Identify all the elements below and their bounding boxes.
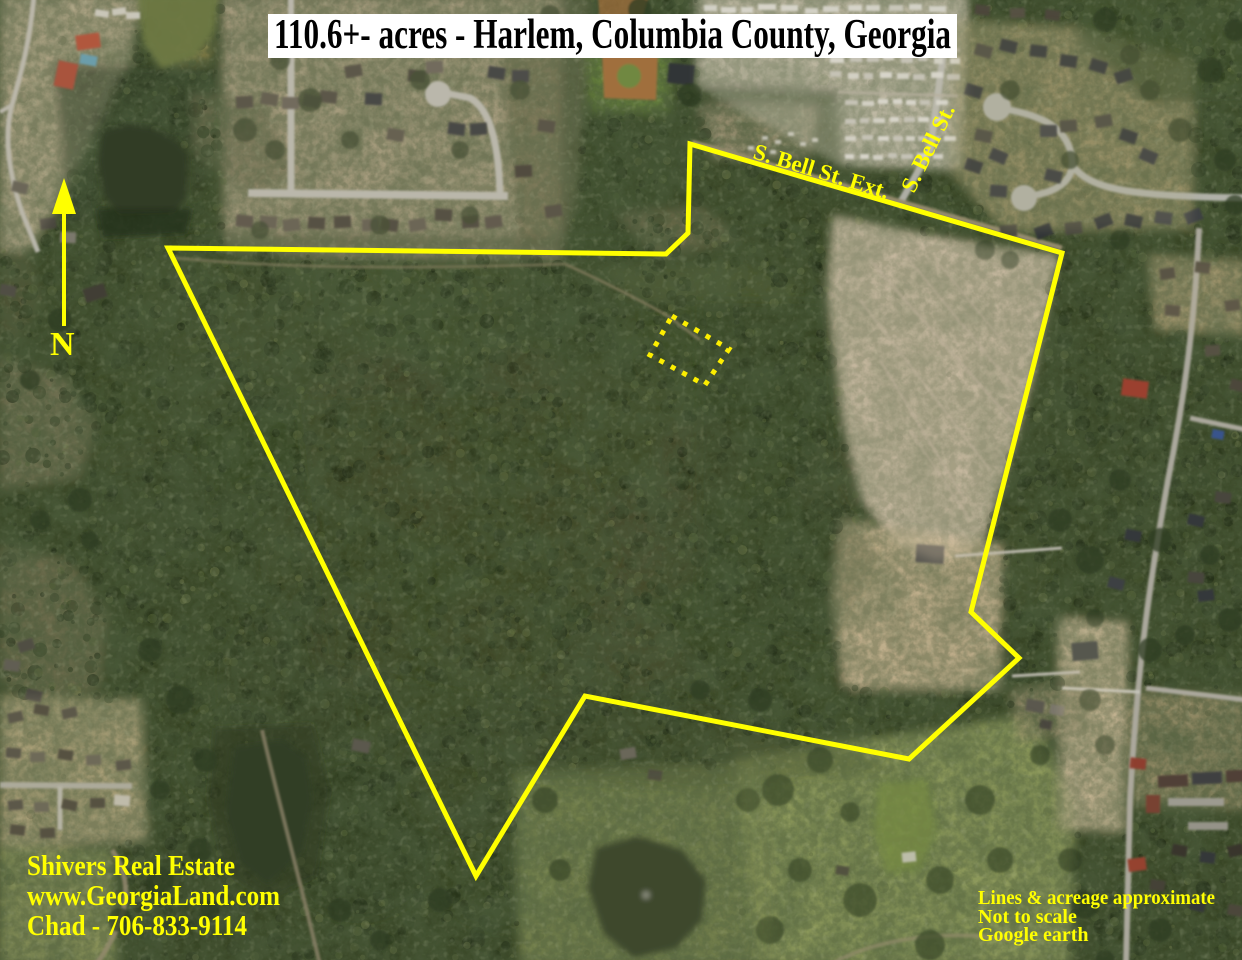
svg-text:Google earth: Google earth (978, 924, 1089, 946)
svg-text:N: N (50, 326, 75, 363)
svg-text:www.GeorgiaLand.com: www.GeorgiaLand.com (27, 880, 280, 912)
svg-text:110.6+- acres - Harlem, Columb: 110.6+- acres - Harlem, Columbia County,… (274, 12, 951, 58)
svg-text:Chad - 706-833-9114: Chad - 706-833-9114 (27, 910, 247, 942)
svg-text:Shivers Real Estate: Shivers Real Estate (27, 850, 235, 882)
